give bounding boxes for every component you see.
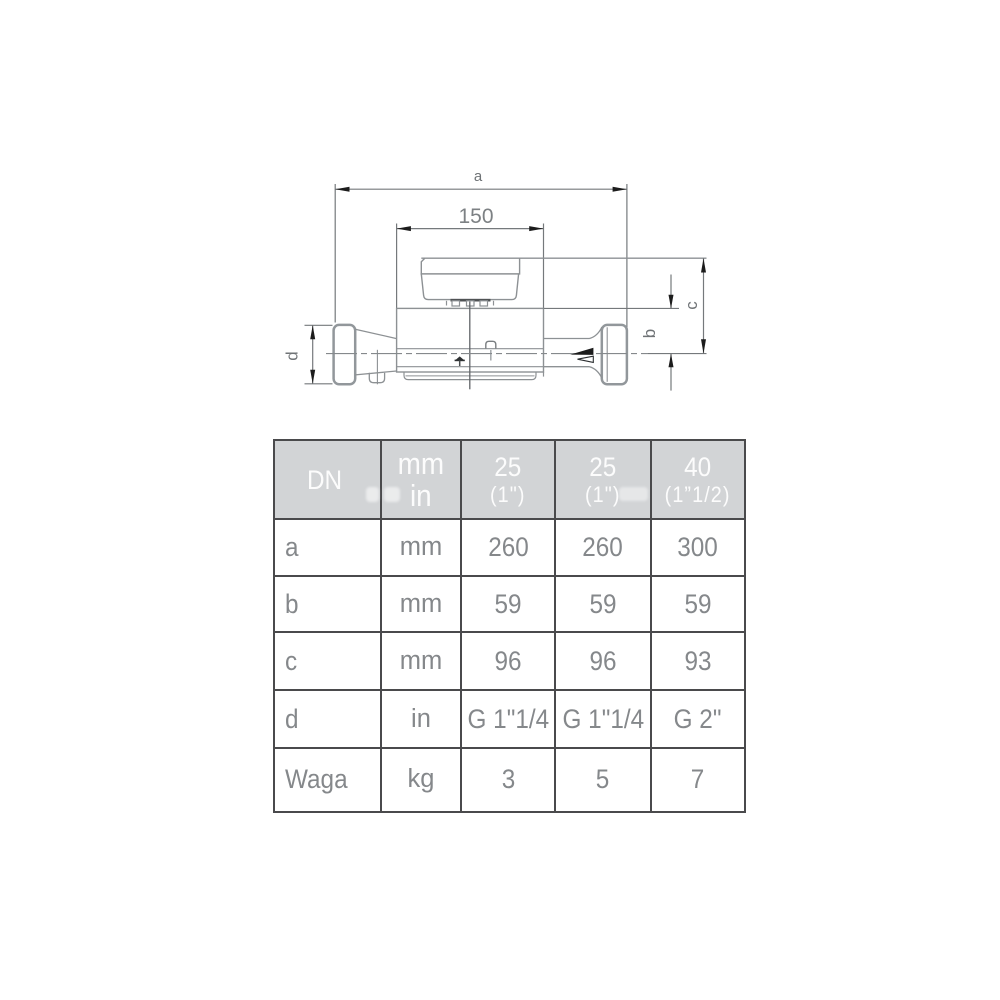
svg-text:a: a [474, 168, 483, 185]
svg-text:b: b [640, 329, 659, 338]
svg-text:c: c [682, 301, 701, 310]
svg-text:d: d [283, 351, 302, 360]
svg-text:150: 150 [458, 205, 493, 228]
